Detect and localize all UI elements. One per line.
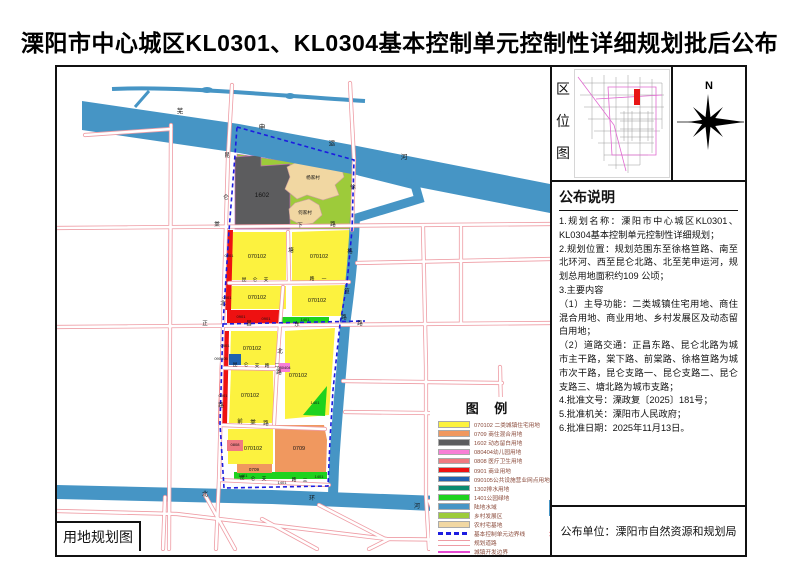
minimap-border <box>575 70 670 178</box>
legend-item: 080404幼儿园用地 <box>430 447 549 456</box>
map-label: 070102 <box>289 373 307 379</box>
legend-label: 1302排水用地 <box>474 484 509 493</box>
location-title-char: 区 <box>556 79 572 99</box>
legend-item: 1401公园绿地 <box>430 493 549 502</box>
map-label: 北 <box>220 299 226 307</box>
legend-label: 0901 商业用地 <box>474 466 511 475</box>
legend-label: 090105公共设施营业网点用地 <box>474 475 550 484</box>
map-label: 1401 <box>315 474 325 479</box>
map-label: 一 <box>322 277 327 282</box>
legend-swatch-fill <box>438 503 470 510</box>
legend-label: 规划道路 <box>474 538 497 547</box>
sheet-caption: 用地规划图 <box>57 521 141 551</box>
map-label: 前 <box>237 417 243 425</box>
map-label: 路 <box>310 275 315 282</box>
road-south-diag2-core <box>262 519 317 549</box>
compass-rose <box>688 94 744 150</box>
landuse-map-panel: 芜申运河北环河昆仑北路徐格笪路棠下路正昌东路昆仑支路一昆仑支路二昆仑支路三塘北路… <box>57 67 552 555</box>
map-label: 070102 <box>241 393 259 399</box>
road-tangbei-upper-core <box>288 232 289 281</box>
map-label: 环 <box>309 495 315 502</box>
location-row: 区位图 <box>552 67 745 182</box>
map-label: 杨家村 <box>306 174 320 181</box>
legend: 图 例 070102 二类城镇住宅用地0709 商住混合用地1602 动态留白用… <box>430 397 549 552</box>
road-kunlun-branch-1-core <box>229 282 349 283</box>
legend-label: 1602 动态留白用地 <box>474 438 522 447</box>
north-label: N <box>705 80 713 92</box>
legend-swatch-fill <box>438 512 470 519</box>
map-label: 1401 <box>311 400 321 405</box>
map-label: 仑 <box>244 361 249 368</box>
legend-swatch-fill <box>438 421 470 428</box>
map-label: 河 <box>414 502 420 510</box>
legend-label: 1401公园绿地 <box>474 493 509 502</box>
map-label: 三 <box>303 478 308 484</box>
legend-item: 陆地水域 <box>430 502 549 511</box>
map-label: 支 <box>255 362 260 369</box>
map-label: 仑 <box>251 475 256 482</box>
map-label: 1401 <box>278 480 288 485</box>
map-label: 昆 <box>233 362 238 368</box>
legend-swatch-fill <box>438 476 470 483</box>
legend-swatch-fill <box>438 439 470 446</box>
parcel-0901 <box>227 310 279 323</box>
notice-line: （2）道路交通：正昌东路、昆仑北路为城市主干路，棠下路、前棠路、徐格笪路为城市次… <box>559 339 738 394</box>
map-label: 芜 <box>177 106 184 115</box>
legend-item: 090105公共设施营业网点用地 <box>430 475 549 484</box>
map-label: 下 <box>297 222 303 229</box>
legend-label: 0709 商住混合用地 <box>474 429 522 438</box>
pond <box>285 93 295 99</box>
map-label: 0901 <box>223 295 233 300</box>
map-label: 格 <box>347 247 353 255</box>
legend-swatch-road <box>438 540 470 546</box>
map-label: 0709 <box>249 467 260 472</box>
map-label: 0901 <box>262 316 272 321</box>
map-label: 0808 <box>231 442 241 447</box>
publisher-row: 公布单位：溧阳市自然资源和规划局 <box>552 505 745 555</box>
notice-line: 1.规划名称：溧阳市中心城区KL0301、KL0304基本控制单元控制性详细规划… <box>559 215 738 243</box>
map-label: 070102 <box>248 254 266 260</box>
map-label: 徐 <box>350 183 356 191</box>
legend-item: 1602 动态留白用地 <box>430 438 549 447</box>
map-label: 1602 <box>255 192 270 199</box>
map-label: 0901 <box>225 253 235 258</box>
map-label: 0901 <box>219 393 229 398</box>
map-label: 1401 <box>239 473 249 478</box>
legend-label: 农村宅基地 <box>474 520 502 529</box>
notice-line: 3.主要内容 <box>559 284 738 298</box>
map-label: 070102 <box>310 254 328 260</box>
sheet-frame: 芜申运河北环河昆仑北路徐格笪路棠下路正昌东路昆仑支路一昆仑支路二昆仑支路三塘北路… <box>55 65 747 557</box>
notice-body: 1.规划名称：溧阳市中心城区KL0301、KL0304基本控制单元控制性详细规划… <box>559 215 738 436</box>
legend-swatch-line <box>438 551 470 553</box>
map-label: 昆 <box>224 152 230 159</box>
legend-item: 0709 商住混合用地 <box>430 429 549 438</box>
notice-line: 5.批准机关：溧阳市人民政府； <box>559 408 738 422</box>
map-label: 路 <box>263 419 269 427</box>
map-label: 河 <box>401 153 408 161</box>
notice-line: 6.批准日期：2025年11月13日。 <box>559 422 738 436</box>
location-map-panel: 区位图 <box>552 67 673 180</box>
legend-swatch-fill <box>438 430 470 437</box>
legend-label: 080404幼儿园用地 <box>474 447 521 456</box>
location-panel-title: 区位图 <box>556 79 572 163</box>
map-label: 塘 <box>288 246 294 254</box>
right-column: 区位图 <box>552 67 745 555</box>
legend-swatch-fill <box>438 494 470 501</box>
legend-label: 基本控制单元边界线 <box>474 529 525 538</box>
notice-line: 2.规划位置：规划范围东至徐格笪路、南至北环河、西至昆仑北路、北至芜申运河，规划… <box>559 243 738 284</box>
map-label: 070102 <box>308 298 326 304</box>
legend-rows: 070102 二类城镇住宅用地0709 商住混合用地1602 动态留白用地080… <box>430 420 549 555</box>
legend-swatch-dash <box>438 532 470 535</box>
legend-label: 城镇开发边界 <box>474 547 508 555</box>
legend-item: 0901 商业用地 <box>430 465 549 474</box>
location-title-char: 位 <box>556 111 572 131</box>
map-label: 北 <box>202 490 208 498</box>
location-title-char: 图 <box>556 143 572 163</box>
map-label: 0901 <box>221 343 231 348</box>
legend-item: 1302排水用地 <box>430 484 549 493</box>
legend-label: 070102 二类城镇住宅用地 <box>474 420 540 429</box>
minimap-site-marker <box>634 89 640 105</box>
legend-swatch-fill <box>438 449 470 456</box>
map-label: 仑 <box>223 193 229 201</box>
map-label: 东 <box>294 320 300 328</box>
legend-item: 070102 二类城镇住宅用地 <box>430 420 549 429</box>
river-connector <box>135 91 149 107</box>
road-kunlun-branch-2-core <box>224 368 278 369</box>
map-label: 北 <box>277 347 283 355</box>
legend-swatch-fill <box>438 521 470 528</box>
map-label: 昆 <box>242 277 247 283</box>
notice-line: （1）主导功能：二类城镇住宅用地、商住混合用地、商业用地、乡村发展区及动态留白用… <box>559 298 738 339</box>
notice-title: 公布说明 <box>559 187 738 211</box>
announcement-sheet: 溧阳市中心城区KL0301、KL0304基本控制单元控制性详细规划批后公布 <box>0 0 799 570</box>
parcel-1401 <box>234 472 327 479</box>
map-label: 运 <box>329 139 336 147</box>
legend-item: 规划道路 <box>430 538 549 547</box>
legend-label: 0808 医疗卫生用地 <box>474 457 522 466</box>
pond <box>201 87 213 93</box>
map-label: 申 <box>259 122 266 131</box>
map-label: 昌 <box>246 320 252 327</box>
legend-item: 乡村发展区 <box>430 511 549 520</box>
map-label: 支 <box>262 475 267 482</box>
map-label: 路 <box>341 313 347 321</box>
legend-label: 乡村发展区 <box>474 511 502 520</box>
map-label: 棠 <box>250 418 256 426</box>
location-minimap <box>574 69 670 178</box>
road-south-diag3-core <box>319 505 387 549</box>
north-arrow-panel: N <box>675 67 745 180</box>
notice-panel: 公布说明 1.规划名称：溧阳市中心城区KL0301、KL0304基本控制单元控制… <box>552 182 745 503</box>
legend-item: 基本控制单元边界线 <box>430 529 549 538</box>
map-label: 路 <box>292 476 297 483</box>
map-label: 080404 <box>277 365 291 370</box>
map-label: 仑 <box>253 276 258 283</box>
map-label: 正 <box>202 320 208 327</box>
map-label: 070102 <box>248 295 266 301</box>
legend-item: 城镇开发边界 <box>430 547 549 555</box>
legend-item: 农村宅基地 <box>430 520 549 529</box>
notice-line: 4.批准文号：溧政复〔2025〕181号； <box>559 394 738 408</box>
map-label: 1401 <box>301 317 311 322</box>
legend-item: 0808 医疗卫生用地 <box>430 456 549 465</box>
page-title: 溧阳市中心城区KL0301、KL0304基本控制单元控制性详细规划批后公布 <box>0 24 799 58</box>
map-label: 路 <box>265 362 270 369</box>
map-label: 090105 <box>214 356 228 361</box>
legend-title: 图 例 <box>430 398 549 417</box>
map-label: 路 <box>218 401 224 409</box>
legend-swatch-fill <box>438 458 470 465</box>
map-label: 路 <box>330 220 336 228</box>
map-label: 支 <box>264 276 269 283</box>
legend-swatch-fill <box>438 485 470 492</box>
map-label: 何家村 <box>298 209 312 215</box>
legend-label: 陆地水域 <box>474 502 497 511</box>
map-label: 笪 <box>344 287 350 295</box>
map-label: 路 <box>357 319 363 327</box>
map-label: 070102 <box>244 446 262 452</box>
map-label: 0709 <box>293 446 305 452</box>
north-arrow: N <box>675 67 745 180</box>
map-label: 070102 <box>243 346 261 352</box>
map-label: 棠 <box>214 220 220 228</box>
river-north-creek <box>112 88 365 101</box>
legend-swatch-fill <box>438 467 470 474</box>
map-label: 0901 <box>237 314 247 319</box>
